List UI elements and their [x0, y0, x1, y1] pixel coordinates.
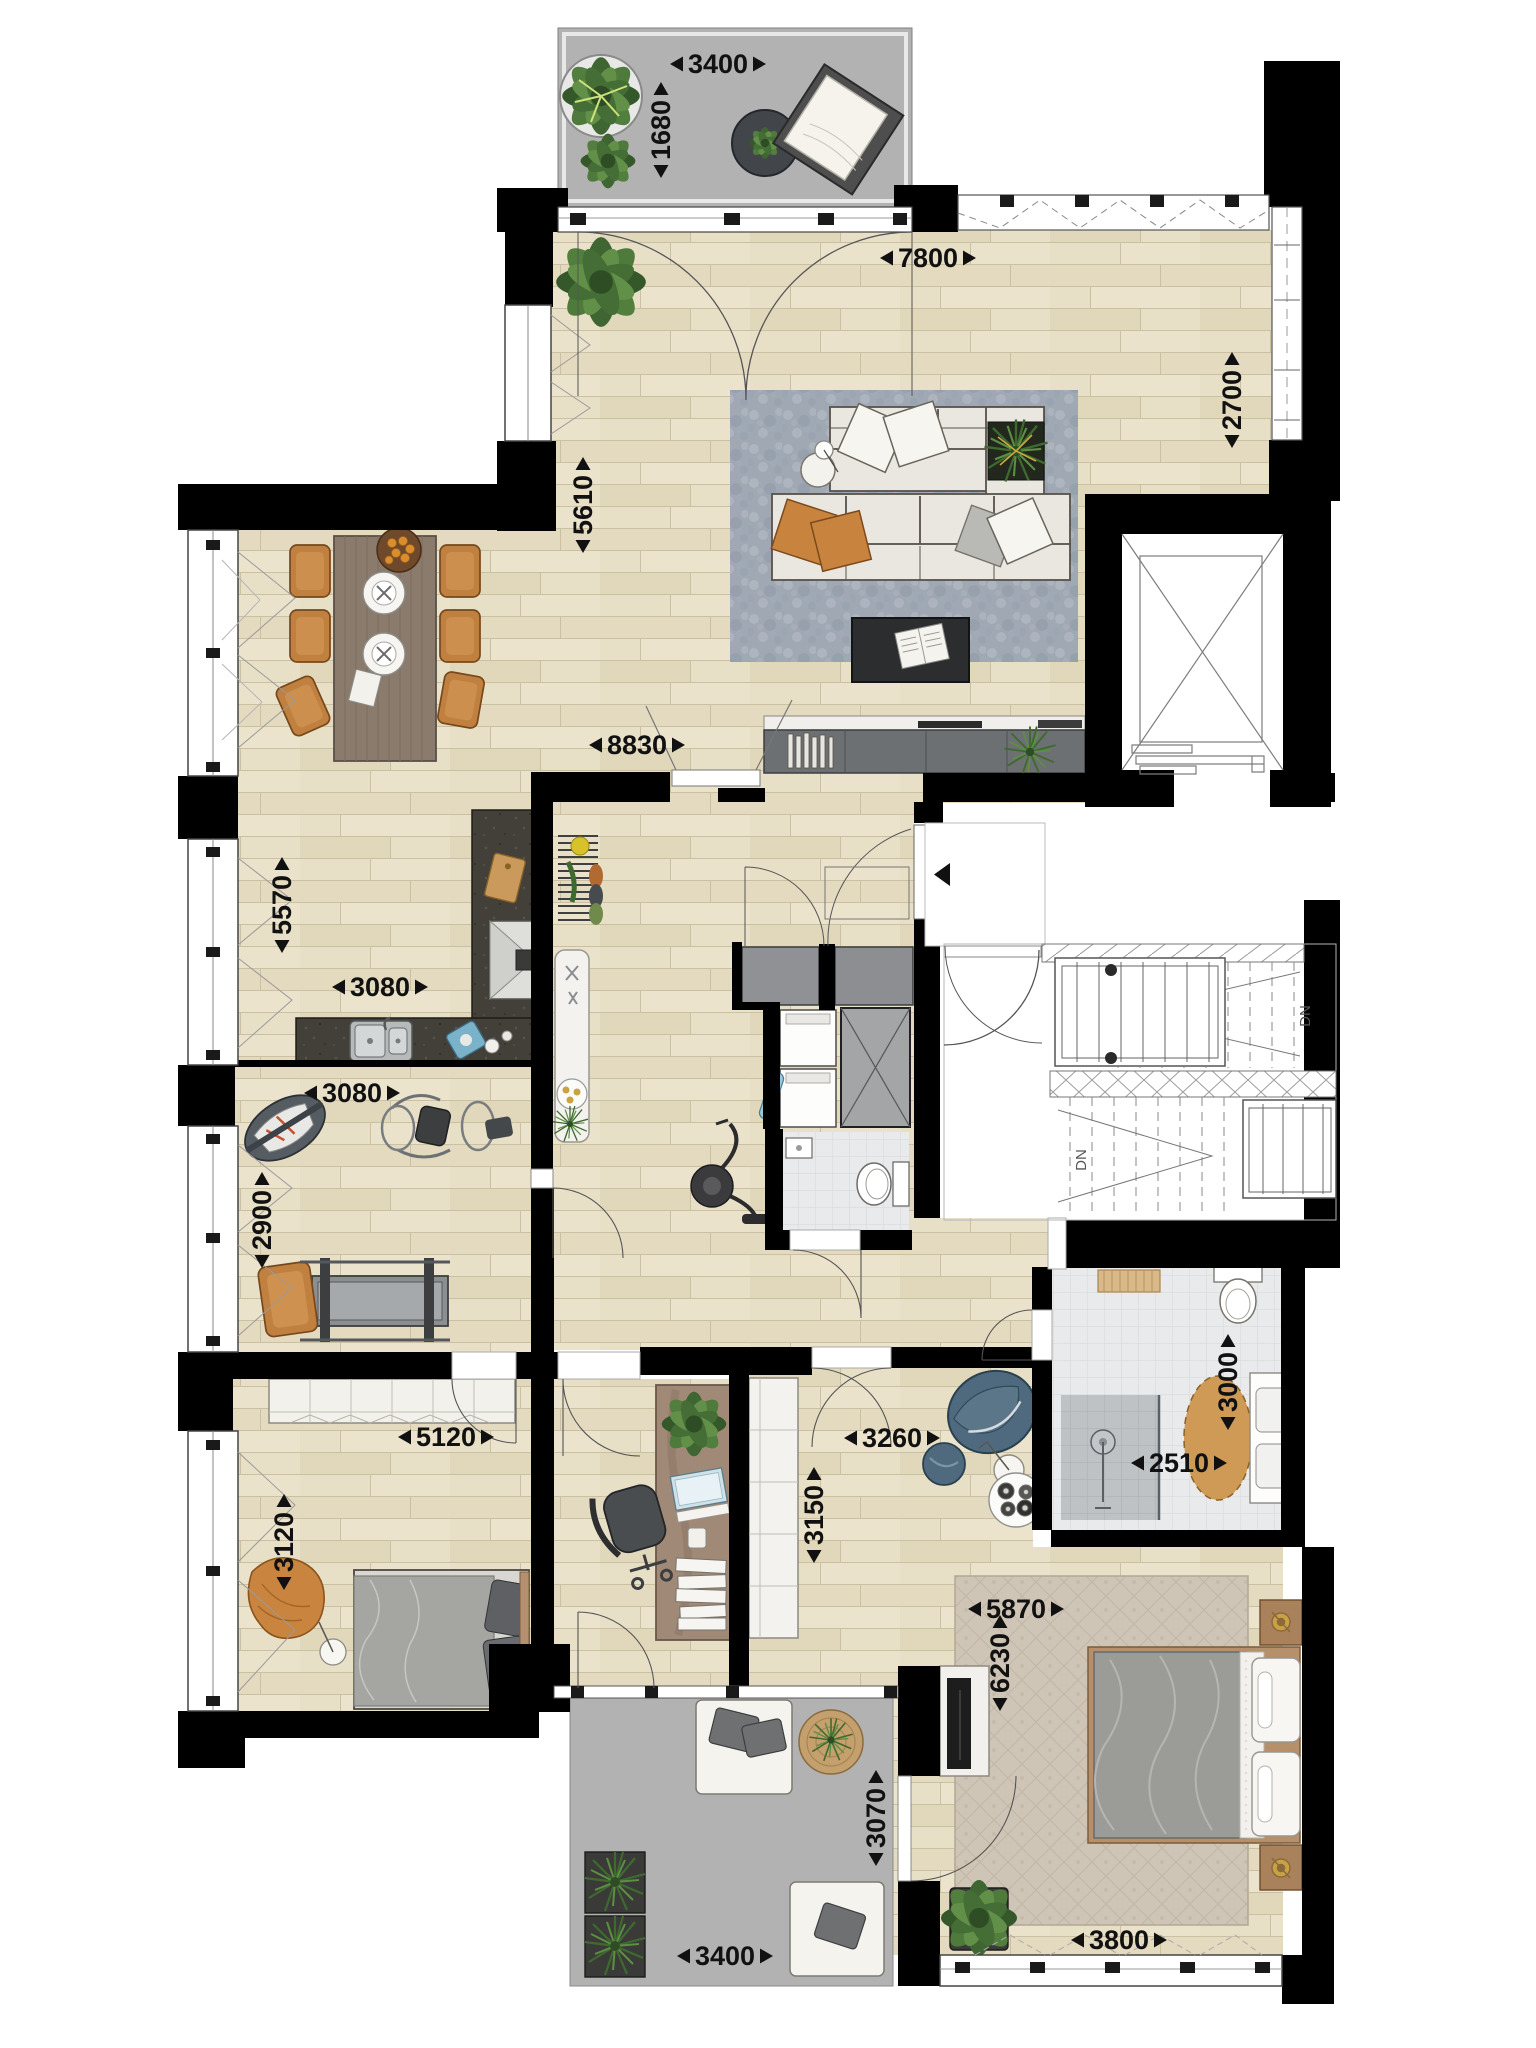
svg-text:2900: 2900	[247, 1190, 277, 1250]
svg-text:DN: DN	[1297, 1005, 1314, 1027]
svg-text:8830: 8830	[607, 730, 667, 760]
svg-text:5610: 5610	[568, 475, 598, 535]
svg-text:7800: 7800	[898, 243, 958, 273]
svg-text:3800: 3800	[1089, 1925, 1149, 1955]
svg-text:3000: 3000	[1213, 1352, 1243, 1412]
svg-text:3400: 3400	[688, 49, 748, 79]
svg-text:3260: 3260	[862, 1423, 922, 1453]
svg-text:5570: 5570	[267, 875, 297, 935]
svg-text:3070: 3070	[861, 1788, 891, 1848]
svg-text:DN: DN	[1073, 1149, 1090, 1171]
svg-text:3080: 3080	[322, 1078, 382, 1108]
svg-text:5870: 5870	[986, 1594, 1046, 1624]
svg-text:1680: 1680	[646, 100, 676, 160]
svg-text:3080: 3080	[350, 972, 410, 1002]
svg-text:2510: 2510	[1149, 1448, 1209, 1478]
svg-text:2700: 2700	[1217, 370, 1247, 430]
svg-text:3150: 3150	[799, 1485, 829, 1545]
svg-text:3120: 3120	[269, 1512, 299, 1572]
svg-text:6230: 6230	[985, 1633, 1015, 1693]
svg-text:3400: 3400	[695, 1941, 755, 1971]
svg-text:5120: 5120	[416, 1422, 476, 1452]
